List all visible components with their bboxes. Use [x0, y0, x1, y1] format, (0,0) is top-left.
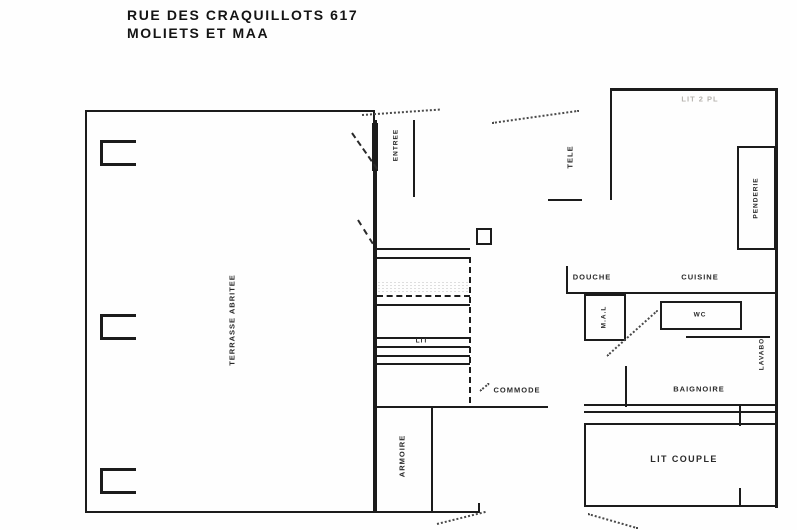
terrace-pillar-middle [100, 314, 136, 340]
wall-bedroom2-left [610, 88, 612, 200]
plan-title-line1: RUE DES CRAQUILLOTS 617 [127, 6, 358, 24]
wall-dresser [377, 406, 548, 408]
wall-bathroom-bottom-2 [584, 411, 777, 413]
bed-line-2 [377, 346, 470, 348]
door-swing-bottom-right [588, 513, 639, 529]
bathtub-label: BAIGNOIRE [673, 385, 725, 394]
double-bed-label: LIT COUPLE [650, 454, 718, 464]
door-jamb-bedroom [739, 488, 741, 506]
tv-label: TELE [566, 145, 575, 168]
door-swing-bottom-left [437, 511, 486, 525]
bed-line-3 [377, 355, 470, 357]
bunk-line-1 [377, 248, 470, 250]
wall-bathroom-bottom-1 [584, 404, 777, 406]
terrace-label: TERRASSE ABRITEE [228, 274, 237, 366]
plan-title: RUE DES CRAQUILLOTS 617 MOLIETS ET MAA [127, 6, 358, 42]
column-box [476, 228, 492, 245]
wall-entry-partition [413, 120, 415, 197]
wall-bottom-extension [375, 511, 480, 513]
window-arc-right [492, 110, 579, 124]
wall-top-right [610, 88, 778, 91]
bed-label: LIT [416, 338, 429, 345]
wall-kitchen-left [566, 266, 568, 294]
bunk-line-2 [377, 257, 470, 259]
tv-stand-line [548, 199, 582, 201]
bunk-dashed-line [377, 295, 470, 297]
wall-bedroom-bottom [584, 505, 777, 507]
dot-tick [479, 383, 489, 392]
mezzanine-dashed-edge [469, 257, 471, 403]
entry-label: ENTREE [393, 129, 400, 161]
shower-label: DOUCHE [573, 273, 612, 282]
wall-bedroom-top [584, 423, 777, 425]
bed-line-4 [377, 363, 470, 365]
sink-counter-line [686, 336, 770, 338]
closet-label: PENDERIE [753, 177, 760, 218]
terrace-pillar-bottom [100, 468, 136, 494]
wardrobe-label: ARMOIRE [398, 435, 407, 477]
stair-hatch [377, 281, 470, 294]
kitchen-label: CUISINE [681, 273, 718, 282]
bedroom2-label: LIT 2 PL [681, 95, 718, 104]
wall-bedroom-left [584, 423, 586, 507]
wall-bathroom-mid [625, 366, 627, 407]
washing-machine-label: M.A.L [601, 306, 608, 329]
wall-central-vertical [374, 120, 377, 513]
floor-plan: RUE DES CRAQUILLOTS 617 MOLIETS ET MAA T… [0, 0, 797, 530]
wardrobe-partition [431, 406, 433, 513]
dresser-label: COMMODE [494, 386, 541, 395]
plan-title-line2: MOLIETS ET MAA [127, 24, 358, 42]
wc-label: WC [694, 312, 707, 319]
bunk-line-3 [377, 304, 470, 306]
sink-label: LAVABO [759, 338, 766, 370]
terrace-pillar-top [100, 140, 136, 166]
